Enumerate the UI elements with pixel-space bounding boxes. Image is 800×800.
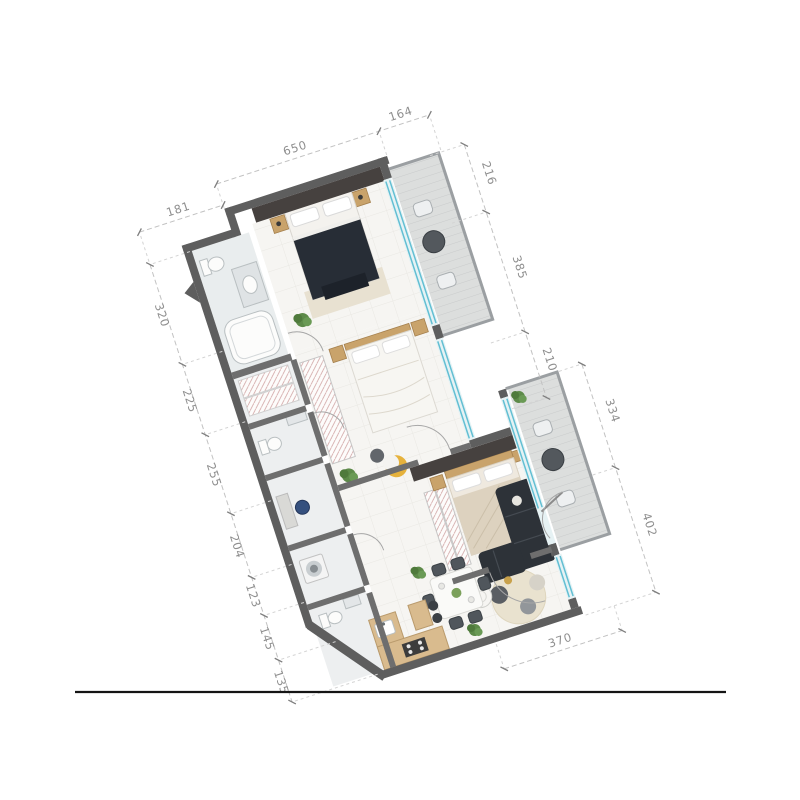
screenshot-root: 650 164 181 320 225 255 204 123 145 135 … xyxy=(0,0,800,800)
floorplan-svg: 650 164 181 320 225 255 204 123 145 135 … xyxy=(0,0,800,800)
